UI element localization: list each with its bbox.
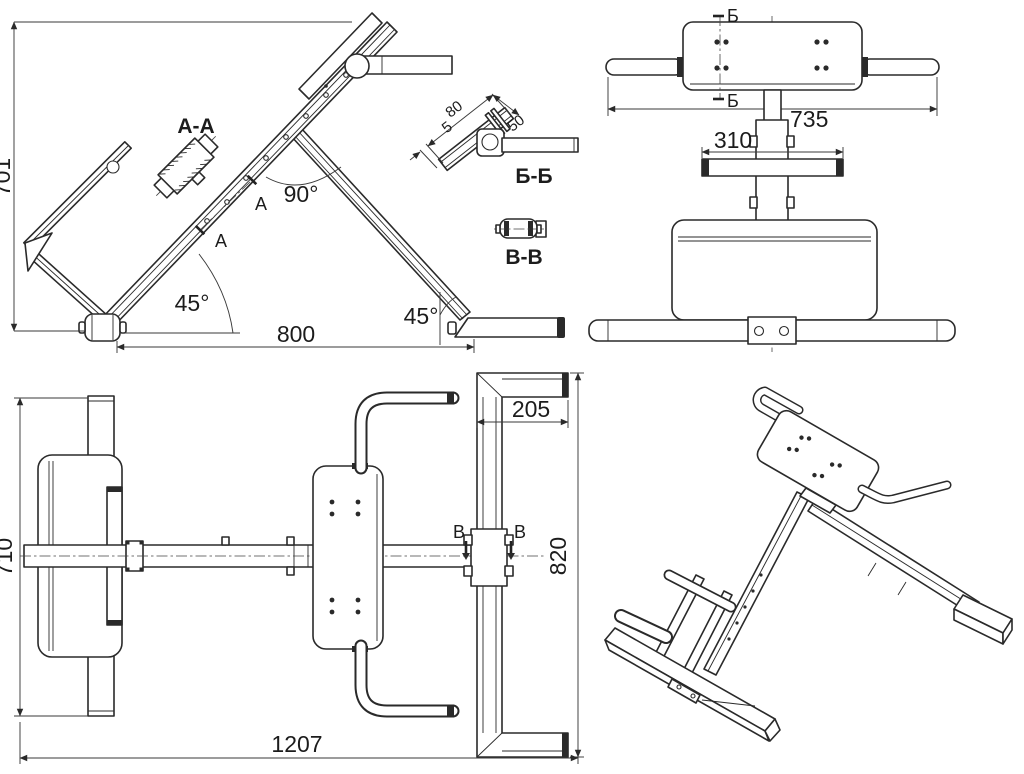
rear-foot-plate [448,317,565,338]
dim-label-205: 205 [512,396,550,422]
back-pad-plan [313,463,383,652]
section-label-aa: A-A [177,115,214,138]
angle-label-45-front: 45° [175,290,210,316]
dim-base-820: 820 [545,373,584,757]
angle-label-90: 90° [284,181,319,207]
dim-label-820: 820 [545,537,571,575]
back-pad-front [683,22,862,90]
iso-main-beam [704,492,809,675]
angle-label-45-rear: 45° [404,303,439,329]
side-view: A A A-A 90° 45° 45° 701 [0,13,565,353]
blueprint-canvas: A A A-A 90° 45° 45° 701 [0,0,1024,774]
iso-view [605,391,1012,741]
foot-bar-front [702,159,843,176]
section-label-vv: В-В [505,246,542,269]
cut-label-b-lower: Б [727,91,739,111]
cut-label-a-lower: A [215,231,227,251]
iso-rear-foot [954,595,1012,644]
dim-label-800: 800 [277,321,315,347]
dim-label-310: 310 [714,127,752,153]
cut-label-a-upper: A [255,194,267,214]
blueprint-page: A A A-A 90° 45° 45° 701 [0,0,1024,774]
front-leg-assembly [24,142,131,325]
iso-rear-beam [808,499,979,614]
dim-label-701: 701 [0,158,15,196]
front-foot-pad [79,314,126,341]
front-view: Б Б 735 310 [589,6,955,352]
cut-label-v-right: В [514,522,526,542]
section-vv-detail: В-В [494,219,546,269]
plan-view: В В 710 205 820 1207 [0,373,584,764]
cut-label-b-upper: Б [727,6,739,26]
dim-label-710: 710 [0,538,17,576]
junction-plate-plan [464,529,513,586]
section-bb-detail: 80 5 50 Б-Б [410,94,578,188]
dim-label-80: 80 [442,98,466,122]
shin-pad-front [672,220,877,320]
section-label-bb: Б-Б [515,165,552,188]
dim-label-1207: 1207 [271,731,322,757]
cut-label-v-left: В [453,522,465,542]
dim-label-735: 735 [790,106,828,132]
iso-right-handle [862,485,947,500]
handle-side [345,54,452,78]
base-front [589,317,955,344]
iso-base-rail [605,628,780,741]
